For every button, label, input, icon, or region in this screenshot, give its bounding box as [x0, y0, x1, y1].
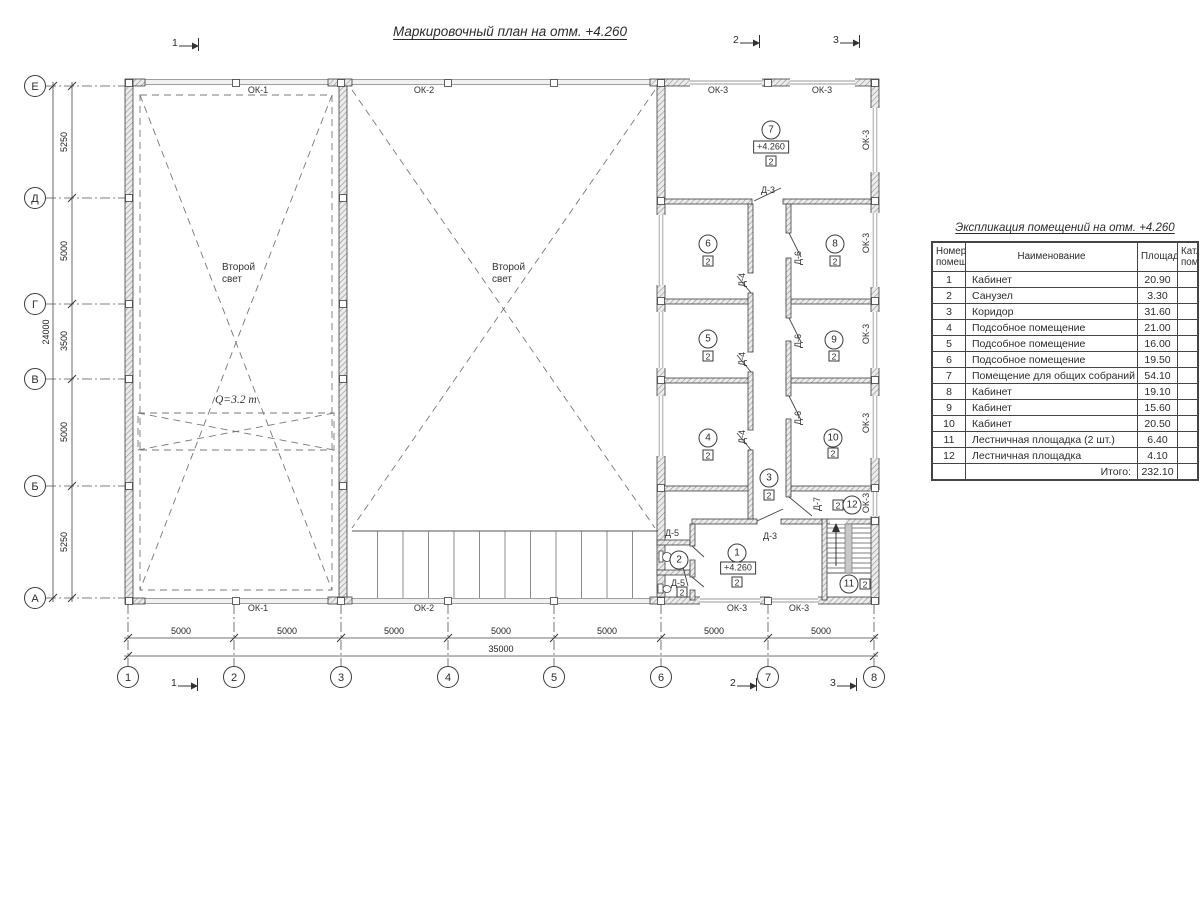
- cell-cat: [1178, 288, 1198, 304]
- room-schedule: Экспликация помещений на отм. +4.260 Ном…: [932, 222, 1198, 480]
- table-row: 6Подсобное помещение19.50: [933, 352, 1198, 368]
- cell-cat: [1178, 400, 1198, 416]
- cell-name: Коридор: [966, 304, 1138, 320]
- total-value: 232.10: [1138, 464, 1178, 480]
- cell-num: 10: [933, 416, 966, 432]
- staircase: [827, 523, 871, 573]
- table-row: 3Коридор31.60: [933, 304, 1198, 320]
- cell-area: 4.10: [1138, 448, 1178, 464]
- cell-area: 19.50: [1138, 352, 1178, 368]
- cell-area: 16.00: [1138, 336, 1178, 352]
- table-row: 5Подсобное помещение16.00: [933, 336, 1198, 352]
- table-row: 7Помещение для общих собраний54.10: [933, 368, 1198, 384]
- col-header-cat: Кат. пом.: [1178, 243, 1198, 272]
- cell-cat: [1178, 448, 1198, 464]
- total-label: Итого:: [966, 464, 1138, 480]
- cell-name: Подсобное помещение: [966, 320, 1138, 336]
- cell-area: 21.00: [1138, 320, 1178, 336]
- window-ribbon-bands: [133, 80, 657, 604]
- cell-cat: [1178, 368, 1198, 384]
- cell-name: Подсобное помещение: [966, 352, 1138, 368]
- cell-name: Санузел: [966, 288, 1138, 304]
- cell-name: Кабинет: [966, 400, 1138, 416]
- cell-area: 3.30: [1138, 288, 1178, 304]
- drawing-page: { "page": { "title": "Маркировочный план…: [0, 0, 1200, 900]
- cell-num: 3: [933, 304, 966, 320]
- col-header-area: Площадь: [1138, 243, 1178, 272]
- table-row: 1Кабинет20.90: [933, 272, 1198, 288]
- cell-area: 6.40: [1138, 432, 1178, 448]
- cell-cat: [1178, 272, 1198, 288]
- cell-name: Кабинет: [966, 384, 1138, 400]
- table-row: 2Санузел3.30: [933, 288, 1198, 304]
- cell-cat: [1178, 336, 1198, 352]
- cell-num: 2: [933, 288, 966, 304]
- cell-num: 11: [933, 432, 966, 448]
- walls-group: [125, 79, 879, 604]
- platform-strip: [352, 531, 658, 598]
- table-row: 4Подсобное помещение21.00: [933, 320, 1198, 336]
- cell-cat: [1178, 416, 1198, 432]
- cell-num: 7: [933, 368, 966, 384]
- table-total-row: Итого: 232.10: [933, 464, 1198, 480]
- cell-num: 8: [933, 384, 966, 400]
- room-schedule-table: Номер помещ. Наименование Площадь Кат. п…: [932, 242, 1198, 480]
- cell-name: Кабинет: [966, 272, 1138, 288]
- cell-area: 19.10: [1138, 384, 1178, 400]
- cell-num: 4: [933, 320, 966, 336]
- cell-name: Помещение для общих собраний: [966, 368, 1138, 384]
- cell-cat: [1178, 432, 1198, 448]
- second-light-dashed-group: [138, 90, 655, 590]
- cell-num: 5: [933, 336, 966, 352]
- table-row: 10Кабинет20.50: [933, 416, 1198, 432]
- col-header-name: Наименование: [966, 243, 1138, 272]
- cell-num: 6: [933, 352, 966, 368]
- dimension-lines-group: [49, 82, 878, 660]
- table-row: 12Лестничная площадка4.10: [933, 448, 1198, 464]
- cell-cat: [1178, 384, 1198, 400]
- cell-name: Кабинет: [966, 416, 1138, 432]
- cell-area: 54.10: [1138, 368, 1178, 384]
- cell-name: Лестничная площадка (2 шт.): [966, 432, 1138, 448]
- cell-name: Лестничная площадка: [966, 448, 1138, 464]
- cell-empty: [1178, 464, 1198, 480]
- cell-num: 1: [933, 272, 966, 288]
- cell-num: 9: [933, 400, 966, 416]
- table-header-row: Номер помещ. Наименование Площадь Кат. п…: [933, 243, 1198, 272]
- cell-cat: [1178, 304, 1198, 320]
- table-row: 8Кабинет19.10: [933, 384, 1198, 400]
- cell-num: 12: [933, 448, 966, 464]
- table-row: 9Кабинет15.60: [933, 400, 1198, 416]
- cell-cat: [1178, 352, 1198, 368]
- cell-cat: [1178, 320, 1198, 336]
- table-row: 11Лестничная площадка (2 шт.)6.40: [933, 432, 1198, 448]
- door-leaves-group: [683, 188, 812, 587]
- cell-area: 20.90: [1138, 272, 1178, 288]
- cell-name: Подсобное помещение: [966, 336, 1138, 352]
- column-squares-group: [126, 80, 879, 605]
- cell-area: 31.60: [1138, 304, 1178, 320]
- schedule-title: Экспликация помещений на отм. +4.260: [932, 222, 1198, 234]
- cell-empty: [933, 464, 966, 480]
- cell-area: 15.60: [1138, 400, 1178, 416]
- cell-area: 20.50: [1138, 416, 1178, 432]
- col-header-num: Номер помещ.: [933, 243, 966, 272]
